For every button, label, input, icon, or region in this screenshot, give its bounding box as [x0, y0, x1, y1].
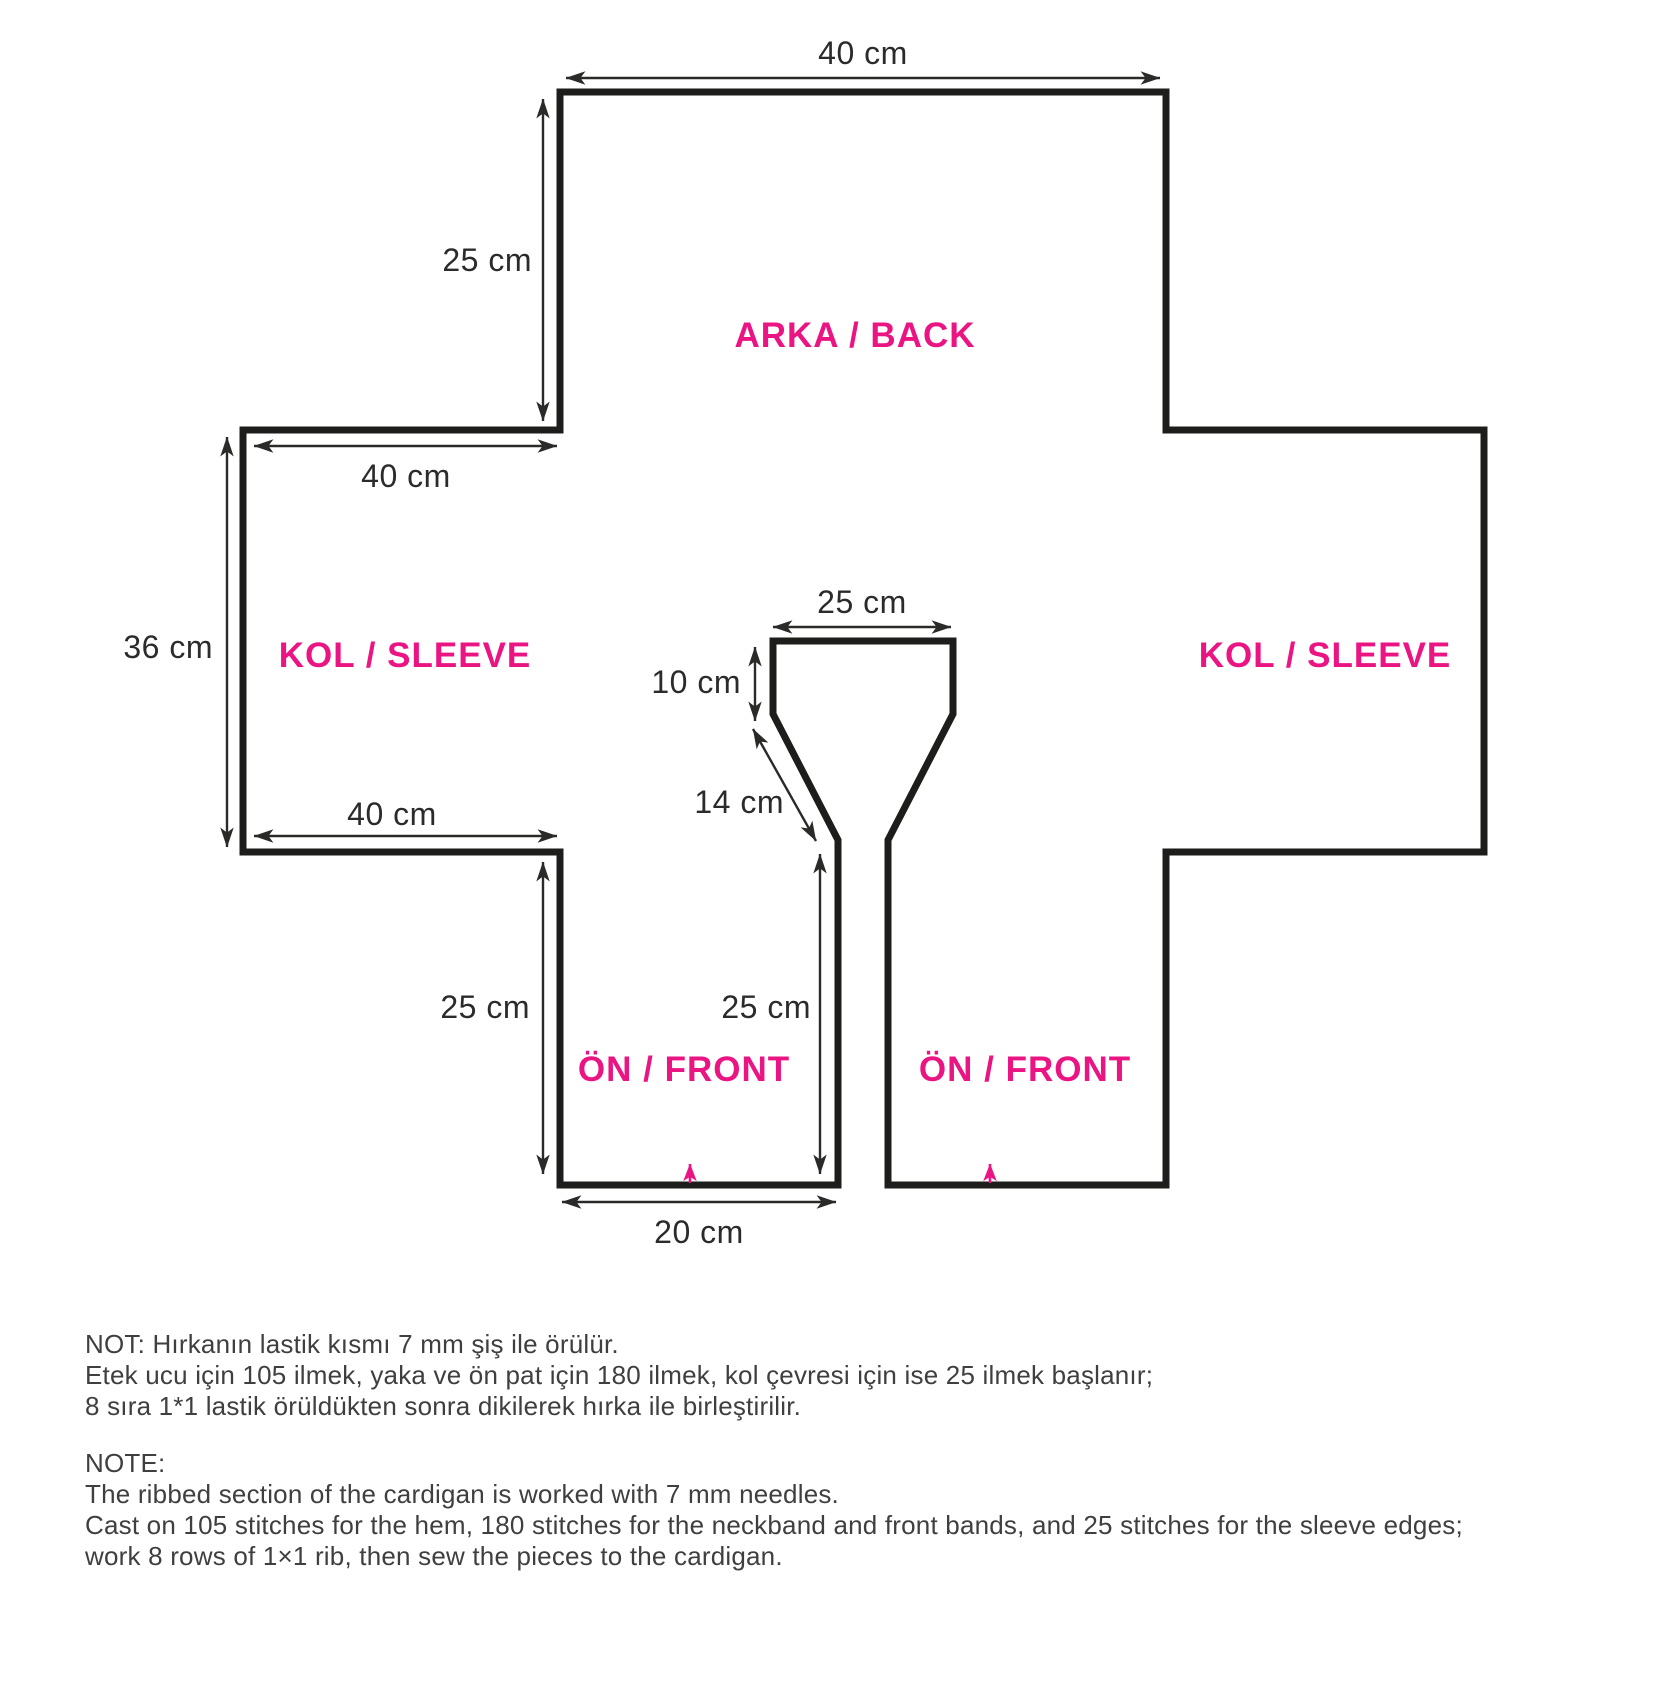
dimension-neck-drop: 10 cm — [651, 647, 755, 721]
label-left-front-piece: ÖN / FRONT — [578, 1050, 790, 1089]
dimension-back-width: 40 cm — [566, 35, 1160, 78]
note-english-line-3: Cast on 105 stitches for the hem, 180 st… — [85, 1510, 1463, 1540]
back-height-label: 25 cm — [442, 242, 532, 278]
front-side-height-label: 25 cm — [440, 989, 530, 1025]
dimension-neck-width: 25 cm — [773, 584, 951, 627]
note-english-line-4: work 8 rows of 1×1 rib, then sew the pie… — [84, 1541, 783, 1571]
dimension-sleeve-bottom-width: 40 cm — [254, 796, 557, 836]
cardigan-pattern-page: 40 cm 25 cm 40 cm 36 cm 40 cm 25 cm — [0, 0, 1680, 1708]
note-english-line-1: NOTE: — [85, 1448, 165, 1478]
neck-width-label: 25 cm — [817, 584, 907, 620]
sleeve-height-label: 36 cm — [123, 629, 213, 665]
sleeve-top-width-label: 40 cm — [361, 458, 451, 494]
back-width-label: 40 cm — [818, 35, 908, 71]
dimension-sleeve-top-width: 40 cm — [254, 446, 557, 494]
label-back-piece: ARKA / BACK — [734, 316, 975, 355]
dimension-back-height: 25 cm — [442, 99, 543, 421]
dimension-front-hem-width: 20 cm — [562, 1202, 836, 1250]
neck-slant-label: 14 cm — [694, 784, 784, 820]
dimension-front-center-height: 25 cm — [721, 854, 820, 1174]
note-turkish-line-1: NOT: Hırkanın lastik kısmı 7 mm şiş ile … — [85, 1329, 619, 1359]
label-right-sleeve-piece: KOL / SLEEVE — [1199, 636, 1452, 675]
front-hem-width-label: 20 cm — [654, 1214, 744, 1250]
dimension-neck-slant: 14 cm — [694, 729, 816, 841]
dimension-front-side-height: 25 cm — [440, 862, 543, 1174]
note-english-line-2: The ribbed section of the cardigan is wo… — [85, 1479, 839, 1509]
note-block-turkish: NOT: Hırkanın lastik kısmı 7 mm şiş ile … — [85, 1329, 1153, 1421]
label-left-sleeve-piece: KOL / SLEEVE — [279, 636, 532, 675]
note-block-english: NOTE: The ribbed section of the cardigan… — [84, 1448, 1463, 1571]
dimension-sleeve-height: 36 cm — [123, 437, 227, 847]
cardigan-pattern-diagram: 40 cm 25 cm 40 cm 36 cm 40 cm 25 cm — [0, 0, 1680, 1708]
label-right-front-piece: ÖN / FRONT — [919, 1050, 1131, 1089]
neck-drop-label: 10 cm — [651, 664, 741, 700]
note-turkish-line-3: 8 sıra 1*1 lastik örüldükten sonra dikil… — [85, 1391, 801, 1421]
sleeve-bottom-width-label: 40 cm — [347, 796, 437, 832]
note-turkish-line-2: Etek ucu için 105 ilmek, yaka ve ön pat … — [85, 1360, 1153, 1390]
front-center-height-label: 25 cm — [721, 989, 811, 1025]
